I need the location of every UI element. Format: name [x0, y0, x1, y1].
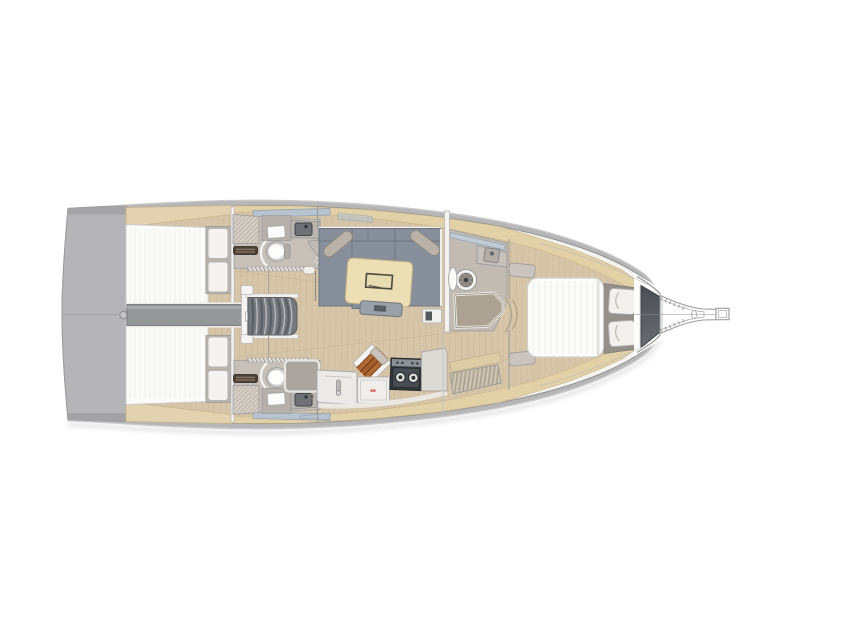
- svg-text:■■: ■■: [370, 388, 376, 393]
